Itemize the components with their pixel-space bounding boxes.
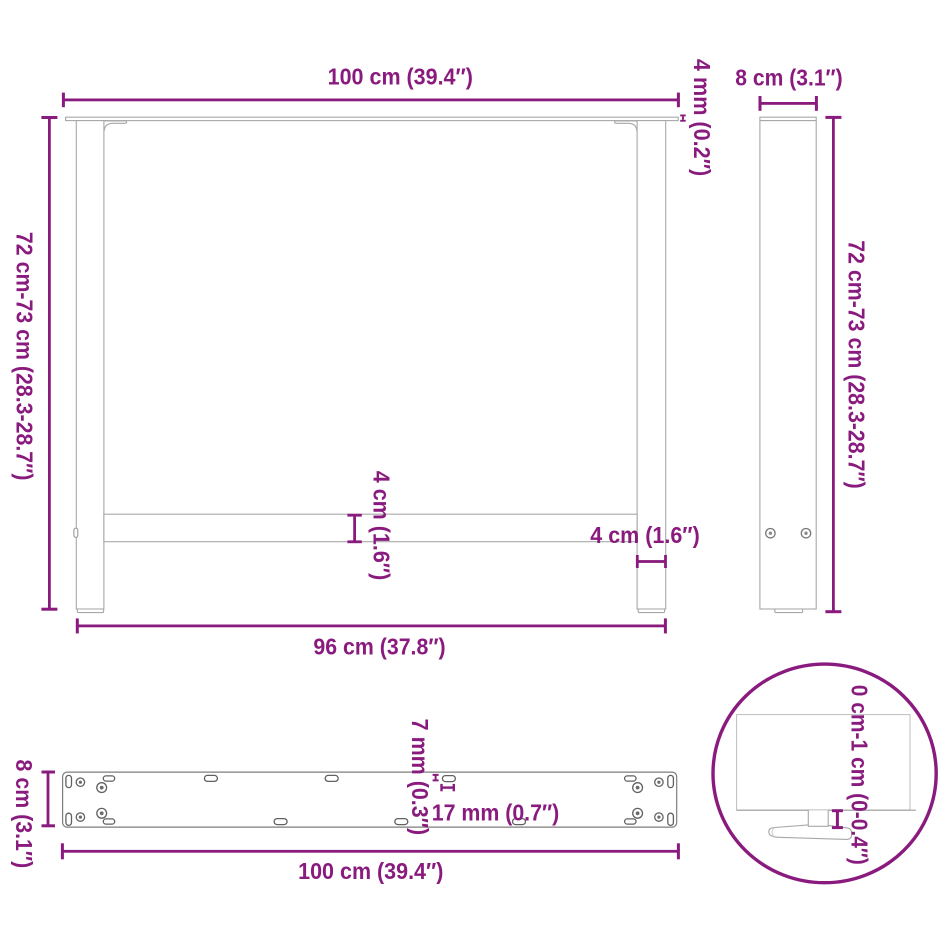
svg-text:7 mm (0.3″): 7 mm (0.3″) <box>407 719 433 835</box>
svg-text:96 cm (37.8″): 96 cm (37.8″) <box>313 634 445 660</box>
svg-text:4 cm (1.6″): 4 cm (1.6″) <box>590 522 699 548</box>
svg-text:72 cm-73 cm (28.3-28.7″): 72 cm-73 cm (28.3-28.7″) <box>843 240 869 489</box>
svg-text:8 cm (3.1″): 8 cm (3.1″) <box>11 760 37 869</box>
svg-text:17 mm (0.7″): 17 mm (0.7″) <box>432 800 560 826</box>
svg-text:0 cm-1 cm (0-0.4″): 0 cm-1 cm (0-0.4″) <box>846 685 872 865</box>
svg-text:100 cm (39.4″): 100 cm (39.4″) <box>328 64 473 90</box>
svg-text:4 mm (0.2″): 4 mm (0.2″) <box>689 59 715 176</box>
svg-text:8 cm (3.1″): 8 cm (3.1″) <box>735 64 842 90</box>
svg-text:4 cm (1.6″): 4 cm (1.6″) <box>368 471 394 580</box>
svg-text:100 cm (39.4″): 100 cm (39.4″) <box>298 858 443 884</box>
svg-text:72 cm-73 cm (28.3-28.7″): 72 cm-73 cm (28.3-28.7″) <box>11 232 37 481</box>
